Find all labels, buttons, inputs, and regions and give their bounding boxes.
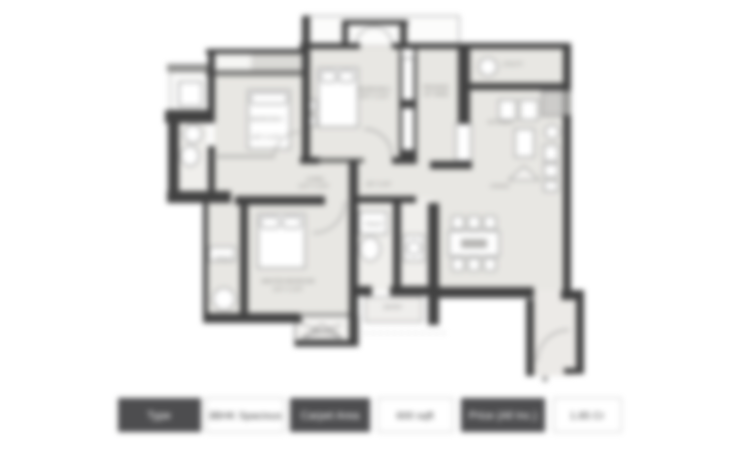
svg-text:3BHK Spacious: 3BHK Spacious xyxy=(208,410,282,422)
svg-text:11'0" X 12'0": 11'0" X 12'0" xyxy=(273,287,304,293)
svg-text:1.85 Cr: 1.85 Cr xyxy=(570,410,605,422)
svg-text:BEDROOM 2: BEDROOM 2 xyxy=(250,117,283,123)
svg-text:21'0" X 12'0": 21'0" X 12'0" xyxy=(298,184,329,190)
svg-text:MASTER BEDROOM: MASTER BEDROOM xyxy=(262,279,315,285)
svg-text:600 sqft: 600 sqft xyxy=(396,410,433,422)
svg-text:LIVING: LIVING xyxy=(306,177,324,183)
svg-text:DINING: DINING xyxy=(490,184,509,190)
svg-text:Carpet Area: Carpet Area xyxy=(301,410,361,422)
svg-text:BALCONY: BALCONY xyxy=(312,329,339,335)
svg-text:Price (All Inc.): Price (All Inc.) xyxy=(469,410,537,422)
svg-text:10'0" X 11'0": 10'0" X 11'0" xyxy=(359,94,390,100)
svg-text:KITCHEN: KITCHEN xyxy=(488,120,512,126)
svg-text:4'0" WIDE: 4'0" WIDE xyxy=(423,92,448,98)
svg-text:8'0" X 6'0": 8'0" X 6'0" xyxy=(367,182,392,188)
svg-text:TOILET: TOILET xyxy=(364,222,384,228)
svg-text:UTILITY: UTILITY xyxy=(503,62,524,68)
svg-text:ENTRY: ENTRY xyxy=(384,305,403,311)
svg-text:Type: Type xyxy=(147,410,171,422)
svg-text:BEDROOM 3: BEDROOM 3 xyxy=(357,87,390,93)
svg-text:PASSAGE: PASSAGE xyxy=(423,85,449,91)
svg-text:10'0" X 11'6": 10'0" X 11'6" xyxy=(251,135,282,141)
svg-text:TOILET: TOILET xyxy=(214,256,234,262)
